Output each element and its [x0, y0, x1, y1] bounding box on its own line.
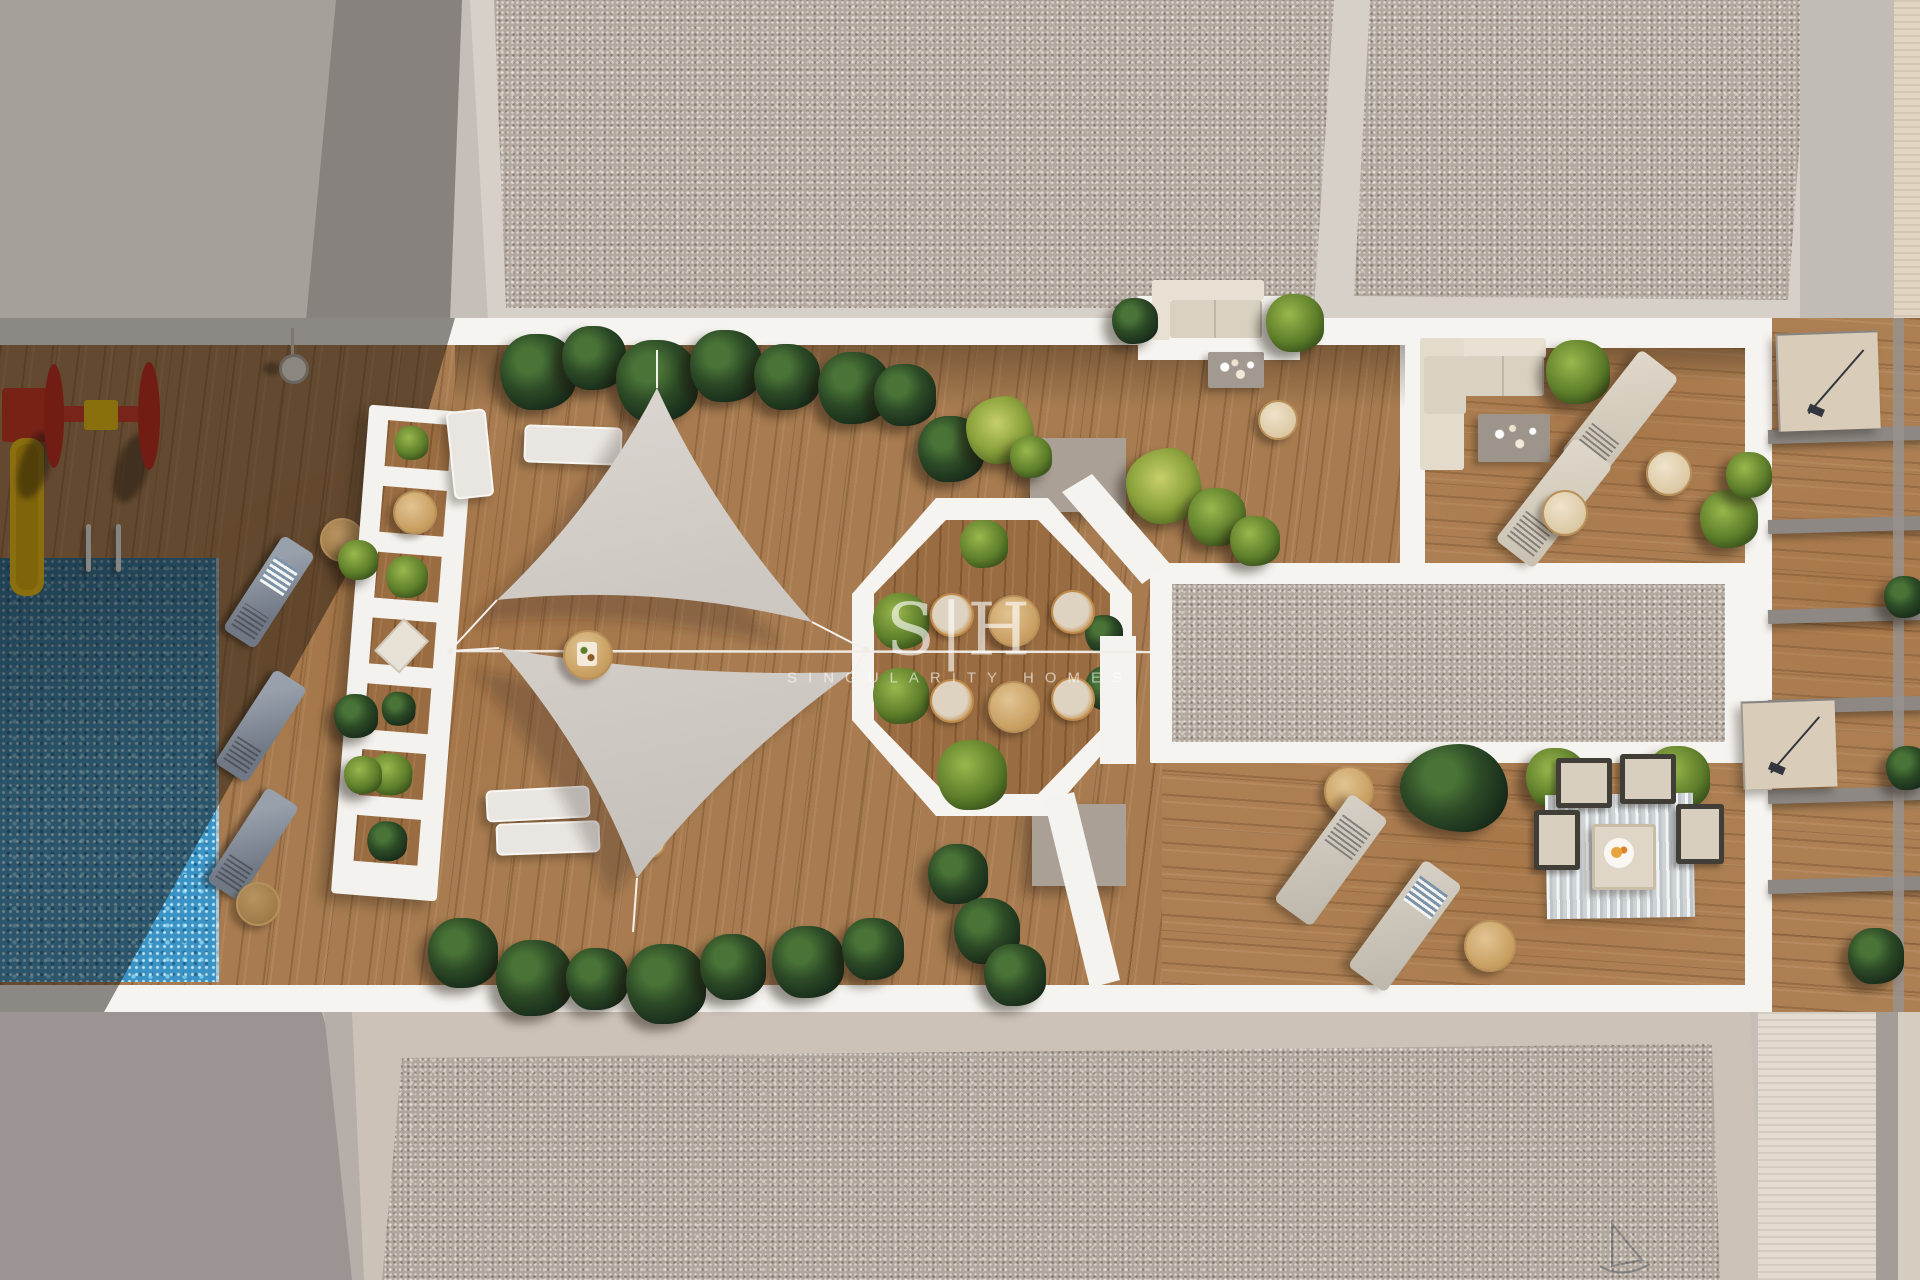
round-table [563, 630, 613, 680]
facade-strip-bottom-right [1758, 1012, 1878, 1280]
plant [380, 691, 417, 728]
gravel-roof-top-right [1352, 0, 1827, 300]
plant [566, 948, 628, 1010]
plant [984, 944, 1046, 1006]
plant [1700, 490, 1758, 548]
plant [1230, 516, 1280, 566]
terrace-divider-vertical [1893, 318, 1904, 1012]
plant [384, 554, 429, 599]
patio-table [988, 595, 1040, 647]
gravel-roof-bottom [368, 1032, 1760, 1280]
plant [1546, 340, 1610, 404]
screen-cell [379, 486, 446, 537]
sofa-seat [1464, 356, 1544, 396]
plant [772, 926, 844, 998]
solarium-gravel [1172, 584, 1725, 742]
aerial-render: S|H SINGULARITY HOMES [0, 0, 1920, 1280]
plant [1848, 928, 1904, 984]
deck-chair [374, 618, 429, 673]
side-table [236, 882, 280, 926]
lounger-mesh [231, 603, 269, 640]
armchair [1676, 804, 1724, 864]
stair-bulkhead [1740, 698, 1837, 789]
stair-bulkhead [1775, 330, 1880, 432]
patio-table [988, 681, 1040, 733]
gravel-roof-top [480, 0, 1360, 308]
screen-cell [374, 552, 441, 603]
plant [874, 364, 936, 426]
stair-railing-foot [1807, 404, 1825, 418]
plant [754, 344, 820, 410]
plate [1604, 838, 1634, 868]
sun-lounger [495, 820, 600, 856]
plant [873, 668, 929, 724]
side-table [1464, 920, 1516, 972]
sofa-chaise [1424, 356, 1466, 414]
dining-patio [852, 498, 1132, 816]
sun-lounger [523, 424, 622, 465]
plant [393, 425, 430, 462]
coffee-table [1208, 352, 1264, 388]
plant [960, 520, 1008, 568]
plant [1266, 294, 1324, 352]
patio-chair [930, 593, 974, 637]
side-table [1542, 490, 1588, 536]
plant [344, 756, 382, 794]
plant [1886, 746, 1920, 790]
plant [1112, 298, 1158, 344]
plant [1010, 436, 1052, 478]
stair-railing [1808, 349, 1865, 414]
sun-lounger [485, 785, 591, 822]
plant [616, 340, 698, 422]
plant [842, 918, 904, 980]
facade-strip-top-right [1894, 0, 1920, 320]
side-table [1646, 450, 1692, 496]
private-terraces [1772, 318, 1920, 1012]
roof-access-block [1032, 804, 1126, 886]
plant [334, 694, 378, 738]
coffee-table [1478, 414, 1550, 462]
plant [496, 940, 572, 1016]
towel [1403, 876, 1448, 920]
armchair [1620, 754, 1676, 804]
sofa-seat [1170, 300, 1262, 338]
screen-cell [354, 815, 421, 866]
plant [338, 540, 378, 580]
plant [1726, 452, 1772, 498]
serving-tray [577, 642, 597, 666]
plant [690, 330, 762, 402]
side-table [634, 826, 666, 858]
plant [873, 593, 929, 649]
screen-cell [385, 420, 452, 471]
lounger-mesh [223, 735, 262, 774]
plant [700, 934, 766, 1000]
plant [428, 918, 498, 988]
armchair [1556, 758, 1612, 808]
bistro-table [391, 489, 438, 536]
plant [937, 740, 1007, 810]
facade-strip-bottom-far-right [1898, 1012, 1920, 1280]
armchair [1534, 810, 1580, 870]
wall-strip-bottom-right [1876, 1012, 1898, 1280]
side-table [1258, 400, 1298, 440]
plant [626, 944, 706, 1024]
plant [366, 820, 409, 863]
patio-chair [930, 679, 974, 723]
plant [1884, 576, 1920, 618]
screen-cell [369, 618, 436, 669]
plant [928, 844, 988, 904]
patio-chair [1051, 590, 1095, 634]
patio-chair [1051, 677, 1095, 721]
